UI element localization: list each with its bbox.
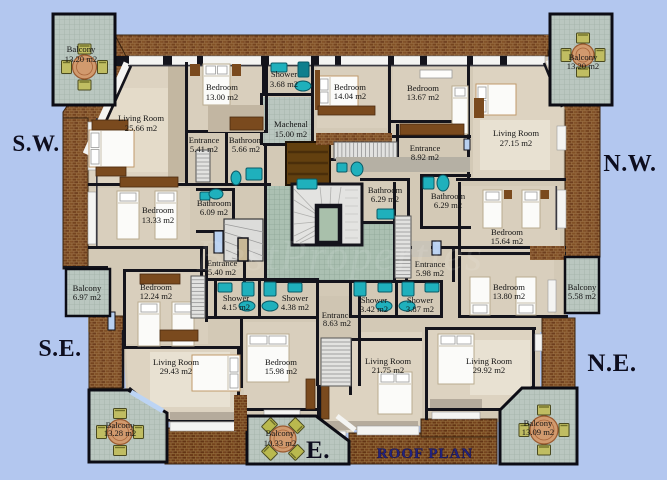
svg-text:6.29 m2: 6.29 m2 — [434, 200, 462, 210]
svg-text:3.68 m2: 3.68 m2 — [270, 79, 298, 89]
svg-text:13.28 m2: 13.28 m2 — [104, 428, 136, 438]
svg-text:Machenal: Machenal — [274, 119, 308, 129]
svg-text:Bedroom: Bedroom — [206, 82, 238, 92]
svg-text:S.E.: S.E. — [38, 336, 81, 362]
svg-text:5.41 m2: 5.41 m2 — [190, 144, 218, 154]
svg-text:ROOF PLAN: ROOF PLAN — [377, 446, 473, 462]
svg-text:10.33 m2: 10.33 m2 — [264, 438, 296, 448]
svg-text:Living Room: Living Room — [118, 113, 164, 123]
svg-text:25.66 m2: 25.66 m2 — [125, 123, 157, 133]
svg-text:5.58 m2: 5.58 m2 — [568, 291, 596, 301]
svg-text:27.15 m2: 27.15 m2 — [500, 138, 532, 148]
svg-text:15.00 m2: 15.00 m2 — [275, 129, 307, 139]
svg-text:3.42 m2: 3.42 m2 — [360, 304, 388, 314]
svg-text:15.98 m2: 15.98 m2 — [265, 366, 297, 376]
svg-text:13.20 m2: 13.20 m2 — [567, 61, 599, 71]
svg-text:8.92 m2: 8.92 m2 — [411, 152, 439, 162]
svg-text:E.: E. — [306, 437, 330, 464]
svg-text:13.33 m2: 13.33 m2 — [142, 215, 174, 225]
svg-text:BestProperties: BestProperties — [196, 231, 484, 280]
svg-text:13.00 m2: 13.00 m2 — [206, 92, 238, 102]
svg-text:N.E.: N.E. — [587, 350, 636, 377]
svg-text:4.38 m2: 4.38 m2 — [281, 302, 309, 312]
svg-text:Living Room: Living Room — [493, 128, 539, 138]
svg-text:13.67 m2: 13.67 m2 — [407, 92, 439, 102]
svg-text:Bedroom: Bedroom — [142, 205, 174, 215]
svg-text:13.80 m2: 13.80 m2 — [493, 291, 525, 301]
svg-text:6.29 m2: 6.29 m2 — [371, 194, 399, 204]
svg-text:Shower: Shower — [271, 69, 297, 79]
svg-text:N.W.: N.W. — [603, 151, 656, 177]
svg-text:29.43 m2: 29.43 m2 — [160, 366, 192, 376]
svg-text:3.87 m2: 3.87 m2 — [406, 304, 434, 314]
svg-text:15.64 m2: 15.64 m2 — [491, 236, 523, 246]
svg-text:5.66 m2: 5.66 m2 — [232, 144, 260, 154]
svg-text:29.92 m2: 29.92 m2 — [473, 365, 505, 375]
svg-text:12.24 m2: 12.24 m2 — [140, 291, 172, 301]
svg-text:6.09 m2: 6.09 m2 — [200, 207, 228, 217]
svg-text:13.09 m2: 13.09 m2 — [522, 427, 554, 437]
svg-text:14.04 m2: 14.04 m2 — [334, 91, 366, 101]
svg-text:13.20 m2: 13.20 m2 — [65, 54, 97, 64]
svg-text:21.75 m2: 21.75 m2 — [372, 365, 404, 375]
svg-text:Balcony: Balcony — [67, 44, 96, 54]
svg-text:S.W.: S.W. — [12, 131, 59, 156]
svg-text:Balcony: Balcony — [266, 428, 295, 438]
svg-text:8.63 m2: 8.63 m2 — [323, 318, 351, 328]
svg-text:6.97 m2: 6.97 m2 — [73, 292, 101, 302]
svg-text:4.15 m2: 4.15 m2 — [222, 302, 250, 312]
